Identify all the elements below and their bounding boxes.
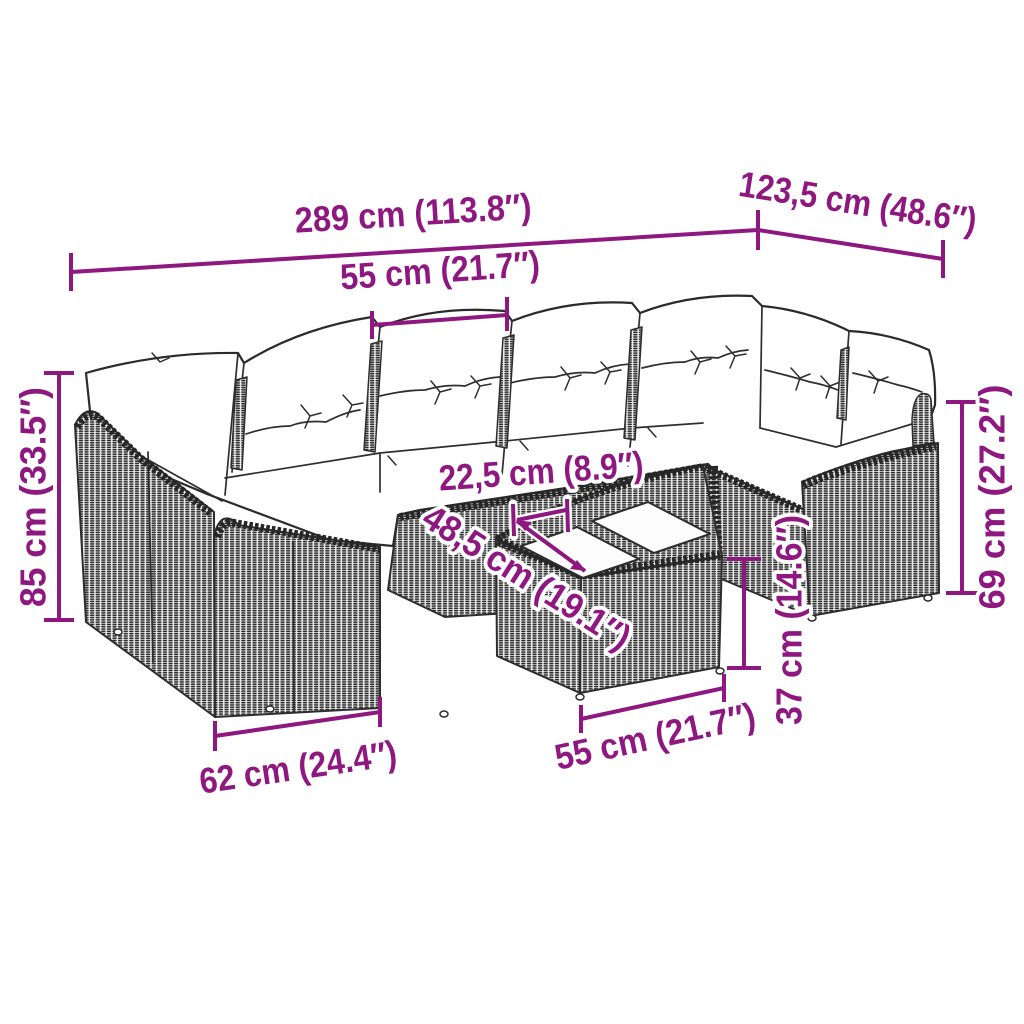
svg-text:37 cm (14.6″): 37 cm (14.6″) — [769, 515, 810, 725]
svg-text:85 cm (33.5″): 85 cm (33.5″) — [13, 387, 54, 607]
svg-text:69 cm (27.2″): 69 cm (27.2″) — [972, 385, 1013, 610]
